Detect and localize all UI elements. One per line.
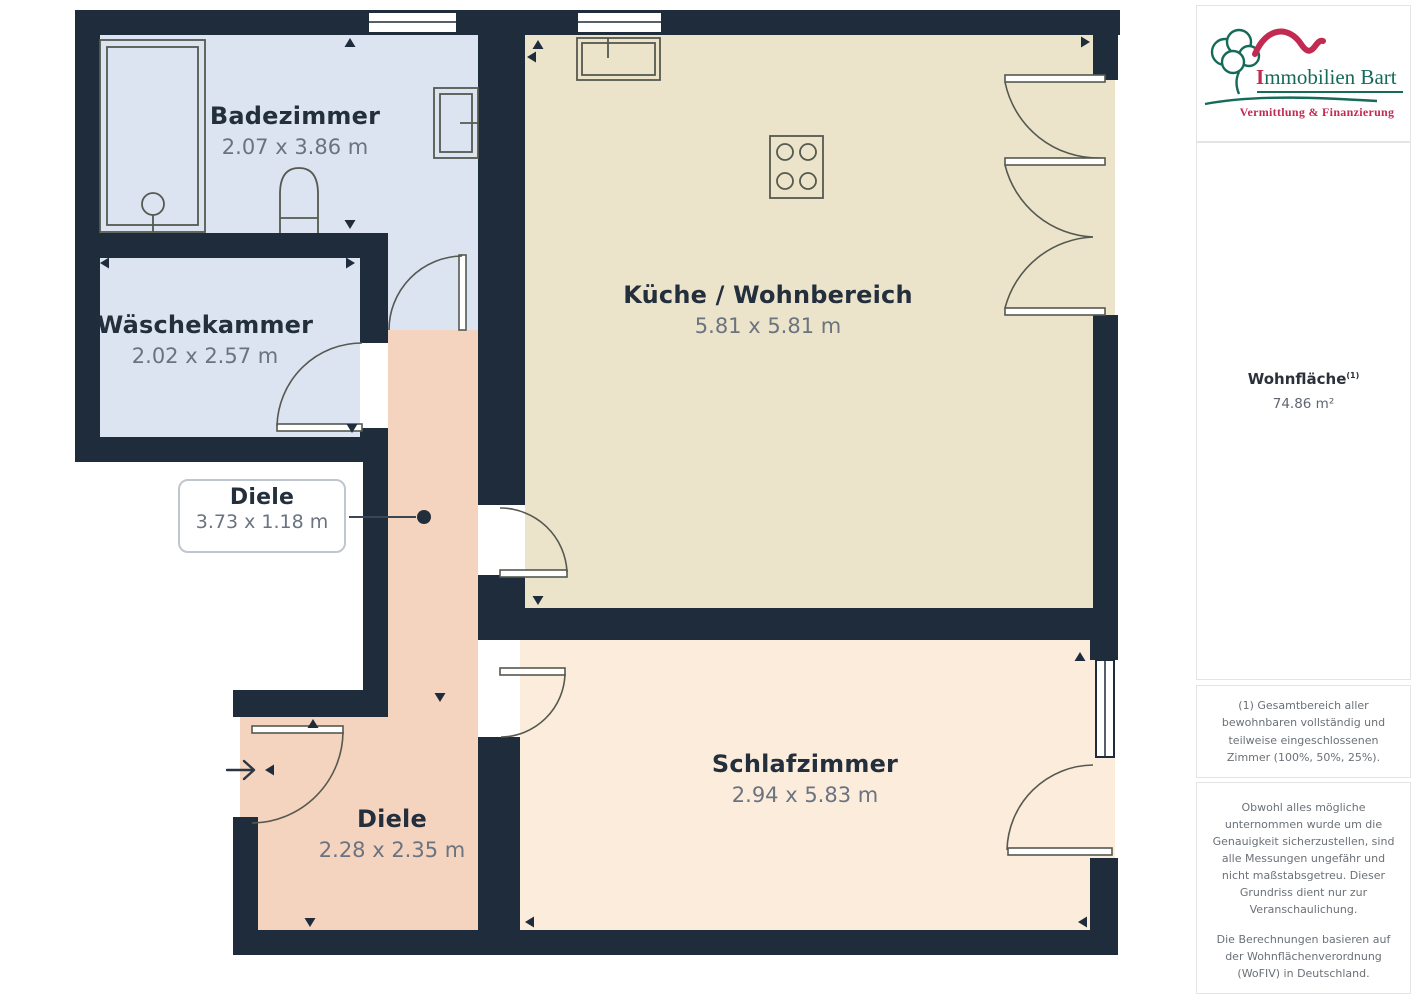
floorplan-page: Badezimmer 2.07 x 3.86 m Wäschekammer 2.… <box>0 0 1414 1000</box>
area-value: 74.86 m² <box>1273 396 1335 412</box>
footnote-panel: (1) Gesamtbereich aller bewohnbaren voll… <box>1196 685 1411 778</box>
callout-anchor-dot <box>417 510 431 524</box>
tree-icon <box>1212 30 1259 94</box>
logo-title: Immobilien Bart <box>1256 65 1397 90</box>
area-label-text: Wohnfläche <box>1248 370 1347 388</box>
logo-initial: I <box>1256 65 1264 89</box>
window-kueche <box>577 12 662 33</box>
label-diele-flur-callout: Diele 3.73 x 1.18 m <box>178 479 346 553</box>
legal-panel: Obwohl alles mögliche unternommen wurde … <box>1196 782 1411 994</box>
logo-title-rest: mmobilien Bart <box>1264 65 1396 89</box>
kueche-floor <box>525 35 1093 608</box>
footnote-text: (1) Gesamtbereich aller bewohnbaren voll… <box>1197 697 1410 765</box>
window-badezimmer <box>368 12 457 33</box>
badezimmer-floor <box>100 35 478 233</box>
schlafzimmer-floor <box>520 640 1090 930</box>
room-name: Diele <box>180 485 344 510</box>
kueche-floor-niche <box>1093 80 1115 315</box>
diele-floor <box>258 717 478 930</box>
roof-icon <box>1255 32 1323 54</box>
flur-floor <box>388 330 478 717</box>
logo-panel: Immobilien Bart Vermittlung & Finanzieru… <box>1196 5 1411 142</box>
area-label: Wohnfläche(1) <box>1248 370 1360 388</box>
disclaimer-wofiv: Die Berechnungen basieren auf der Wohnfl… <box>1211 931 1396 982</box>
window-schlafzimmer <box>1096 660 1114 757</box>
area-panel: Wohnfläche(1) 74.86 m² <box>1196 142 1411 680</box>
area-footnote-marker: (1) <box>1346 371 1359 380</box>
logo-swoosh <box>1205 98 1377 104</box>
logo-subtitle: Vermittlung & Finanzierung <box>1235 105 1399 120</box>
disclaimer-accuracy: Obwohl alles mögliche unternommen wurde … <box>1211 799 1396 918</box>
room-dims: 3.73 x 1.18 m <box>180 511 344 533</box>
waeschekammer-floor <box>100 258 360 437</box>
